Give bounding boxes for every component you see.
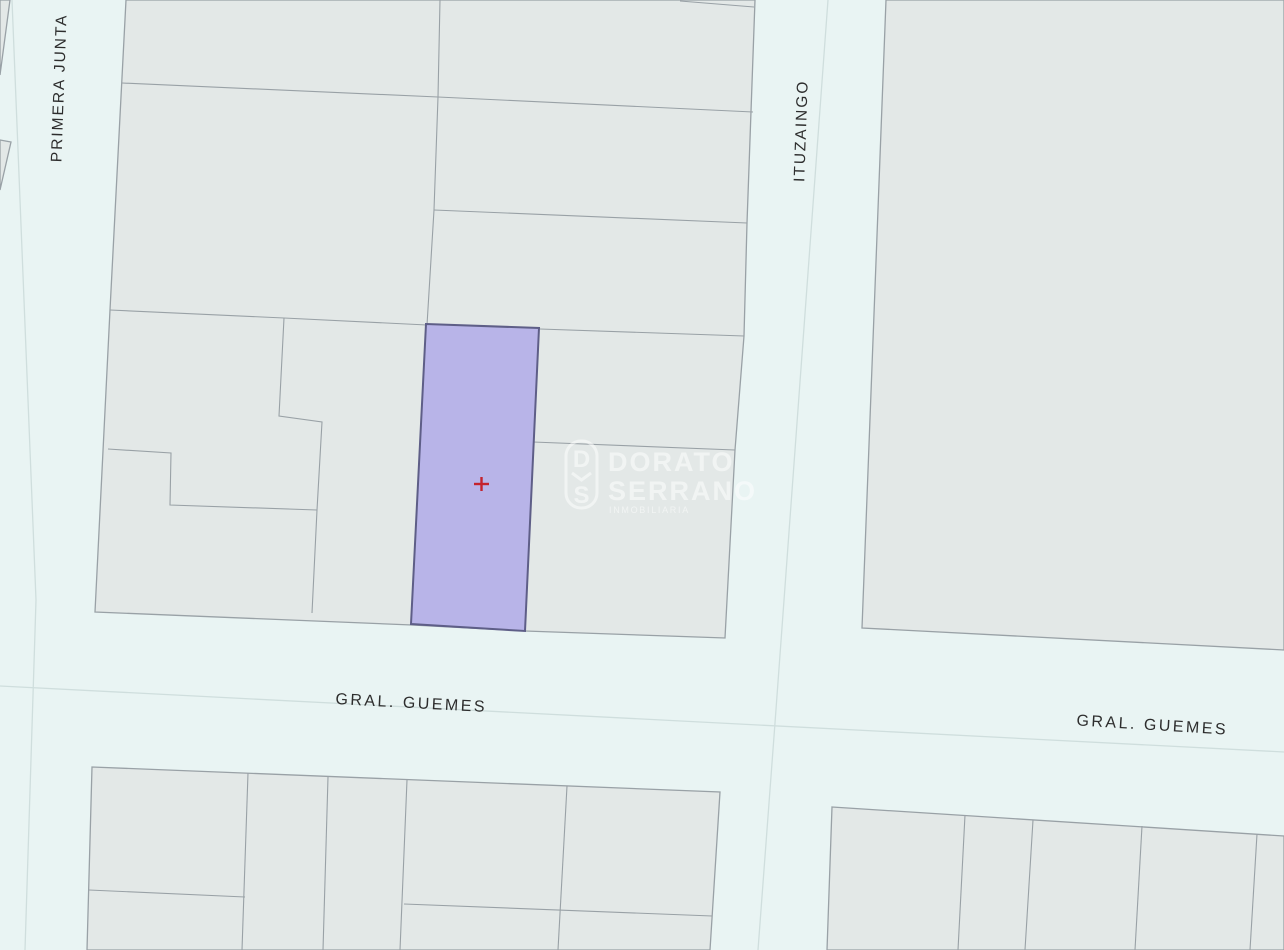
street-label-ituzaingo: ITUZAINGO xyxy=(791,79,812,182)
watermark-brand-line1: DORATO xyxy=(608,447,735,477)
city-block-northeast xyxy=(862,0,1284,650)
monogram-letter-s: S xyxy=(573,482,589,509)
watermark-brand-line2: SERRANO xyxy=(608,476,757,506)
watermark-tagline: INMOBILIARIA xyxy=(609,505,690,515)
highlighted-parcel xyxy=(411,324,539,631)
cadastral-map: PRIMERA JUNTA ITUZAINGO GRAL. GUEMES GRA… xyxy=(0,0,1284,950)
monogram-letter-d: D xyxy=(573,446,590,473)
cadastral-map-canvas: PRIMERA JUNTA ITUZAINGO GRAL. GUEMES GRA… xyxy=(0,0,1284,950)
